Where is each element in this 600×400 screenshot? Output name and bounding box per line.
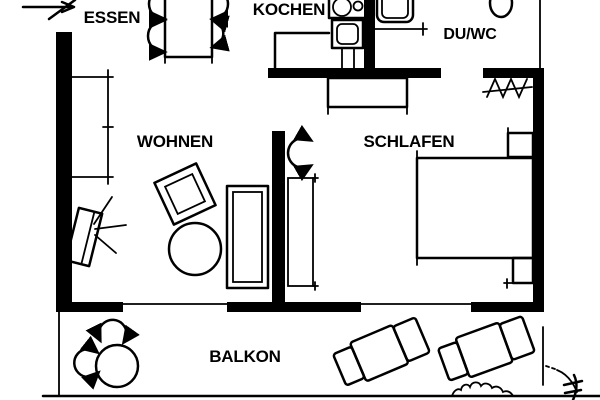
wall-duwc-bottom [483, 68, 544, 78]
dining-chair-icon [149, 0, 164, 19]
coffee-table [169, 223, 221, 275]
radiator-cabinet [72, 70, 113, 184]
kitchen-sink-basin-icon [337, 24, 358, 44]
room-label-schlafen: SCHLAFEN [364, 132, 455, 151]
wall-left-exterior [56, 32, 72, 312]
sofa [227, 186, 268, 288]
dresser [328, 78, 407, 107]
walls [56, 0, 544, 312]
shower-inner-icon [382, 0, 408, 18]
plant-icon [452, 382, 513, 396]
dining-table [165, 0, 212, 57]
zigzag-wardrobe-icon [483, 79, 532, 97]
dining-chair-icon [213, 20, 223, 47]
wall-wohnen-schlafen-divider [272, 131, 285, 312]
nightstand [508, 133, 533, 157]
balcony-furniture [74, 314, 582, 400]
sun-lounger [437, 314, 536, 384]
wall-kitchen-bath-divider [364, 0, 375, 78]
balcony-chair-icon [74, 349, 98, 377]
room-label-wohnen: WOHNEN [137, 132, 213, 151]
dining-chair-icon [213, 0, 228, 19]
sun-lounger [331, 315, 430, 389]
room-label-duwc: DU/WC [443, 26, 497, 43]
nightstand-tick [504, 279, 513, 288]
toilet-icon [490, 0, 512, 17]
bedroom-furniture [288, 78, 533, 290]
wall-schlafen-top [268, 68, 441, 78]
nightstand [513, 258, 533, 283]
wall-right-exterior [533, 68, 544, 312]
room-label-essen: ESSEN [84, 8, 141, 27]
balcony-chair-icon [99, 320, 127, 342]
tv-icon [66, 197, 126, 266]
living-room-furniture [66, 70, 268, 288]
double-bed [417, 158, 533, 258]
armchair [154, 163, 215, 224]
room-label-balkon: BALKON [209, 347, 281, 366]
balcony-round-table [96, 345, 138, 387]
entrance-arrow-icon [23, 0, 75, 19]
dining-set [148, 0, 228, 63]
stove-burner-icon [354, 2, 363, 11]
room-label-kochen: KOCHEN [253, 0, 325, 19]
wall-bottom-segment-1 [56, 302, 123, 312]
wall-bottom-segment-2 [227, 302, 361, 312]
stove-burner-icon [333, 0, 351, 16]
wardrobe [288, 178, 313, 286]
door-swing-icon [288, 138, 310, 168]
counter-outline [275, 33, 329, 68]
floorplan: ESSEN KOCHEN DU/WC WOHNEN SCHLAFEN BALKO… [0, 0, 600, 400]
sink-unit-legs [342, 48, 354, 68]
floorplan-drawing: ESSEN KOCHEN DU/WC WOHNEN SCHLAFEN BALKO… [0, 0, 600, 400]
dining-chair-icon [148, 20, 164, 52]
shower-edge [375, 23, 427, 35]
